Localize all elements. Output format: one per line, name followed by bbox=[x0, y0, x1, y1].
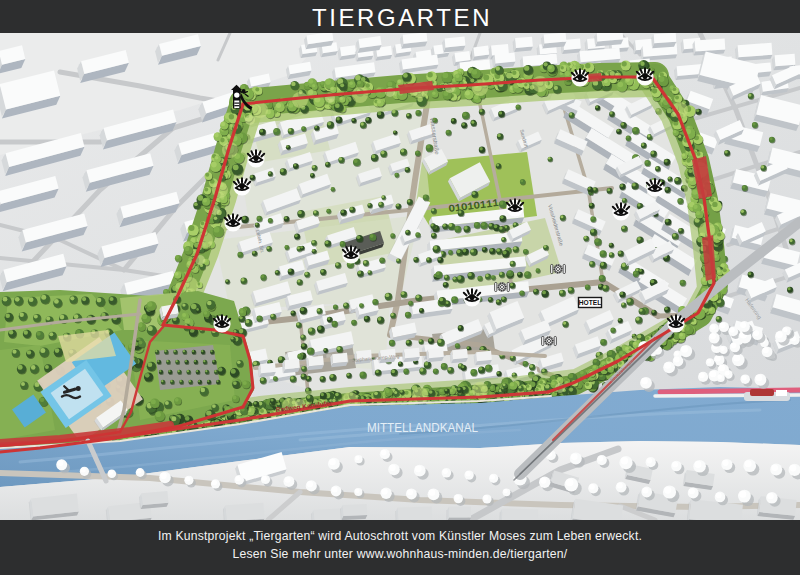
svg-text:MITTELLANDKANAL: MITTELLANDKANAL bbox=[367, 421, 478, 435]
svg-text:HOTEL: HOTEL bbox=[579, 299, 601, 306]
